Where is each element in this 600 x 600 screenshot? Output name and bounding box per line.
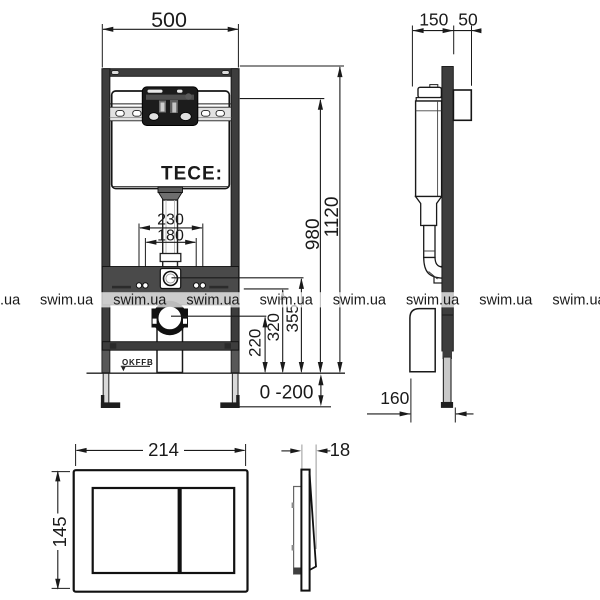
svg-text:swim.ua: swim.ua — [260, 292, 314, 308]
svg-text:160: 160 — [380, 388, 409, 408]
svg-text:swim.ua: swim.ua — [552, 292, 600, 308]
svg-text:980: 980 — [303, 218, 324, 250]
svg-text:214: 214 — [148, 439, 179, 460]
svg-text:500: 500 — [151, 8, 187, 32]
svg-text:TECE:: TECE: — [161, 163, 223, 184]
svg-text:swim.ua: swim.ua — [0, 292, 21, 308]
svg-text:swim.ua: swim.ua — [406, 292, 460, 308]
svg-text:150: 150 — [419, 10, 448, 30]
svg-text:swim.ua: swim.ua — [113, 292, 167, 308]
svg-text:230: 230 — [157, 212, 184, 229]
svg-text:swim.ua: swim.ua — [479, 292, 533, 308]
svg-text:0 -200: 0 -200 — [260, 383, 314, 404]
svg-text:swim.ua: swim.ua — [40, 292, 94, 308]
svg-text:50: 50 — [458, 10, 478, 30]
svg-text:1120: 1120 — [322, 197, 343, 238]
svg-text:320: 320 — [264, 313, 283, 341]
svg-text:swim.ua: swim.ua — [186, 292, 240, 308]
svg-text:swim.ua: swim.ua — [333, 292, 387, 308]
svg-text:220: 220 — [246, 329, 265, 357]
svg-text:18: 18 — [330, 439, 351, 460]
svg-text:OKFFB: OKFFB — [122, 358, 154, 367]
svg-text:145: 145 — [49, 516, 70, 547]
